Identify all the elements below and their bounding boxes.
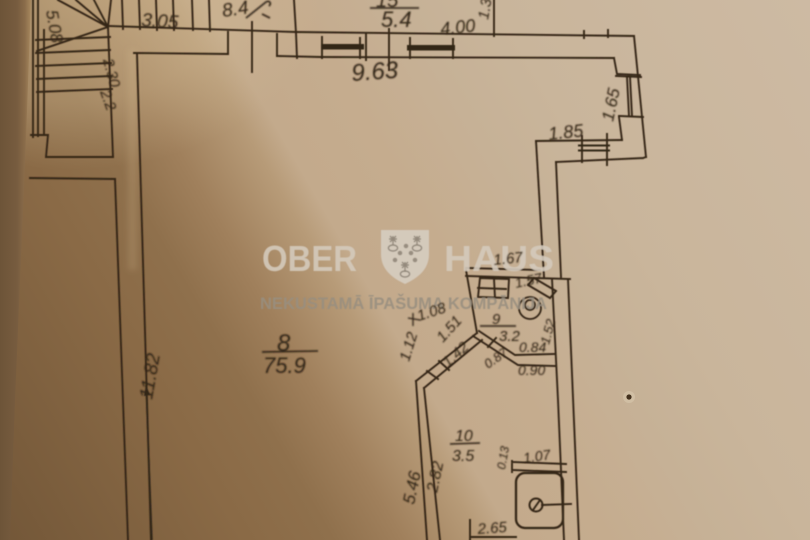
svg-text:10: 10 bbox=[455, 428, 473, 445]
svg-text:75.9: 75.9 bbox=[263, 353, 306, 378]
svg-text:4.00: 4.00 bbox=[439, 15, 476, 39]
svg-text:NEKUSTAMĀ ĪPAŠUMA KOMPĀNIJA: NEKUSTAMĀ ĪPAŠUMA KOMPĀNIJA bbox=[260, 294, 547, 313]
svg-text:3.05: 3.05 bbox=[141, 10, 180, 34]
svg-text:0.90: 0.90 bbox=[518, 362, 545, 378]
svg-text:9.63: 9.63 bbox=[351, 57, 400, 87]
svg-text:2.65: 2.65 bbox=[476, 519, 508, 538]
svg-text:8.4: 8.4 bbox=[221, 0, 250, 22]
svg-text:1.85: 1.85 bbox=[547, 120, 585, 144]
svg-text:5.4: 5.4 bbox=[381, 7, 412, 32]
svg-text:3.2: 3.2 bbox=[499, 328, 521, 345]
svg-text:0.84: 0.84 bbox=[519, 339, 546, 355]
svg-text:3.5: 3.5 bbox=[452, 448, 474, 465]
svg-text:OBER: OBER bbox=[262, 238, 357, 279]
svg-text:1.67: 1.67 bbox=[493, 249, 524, 269]
